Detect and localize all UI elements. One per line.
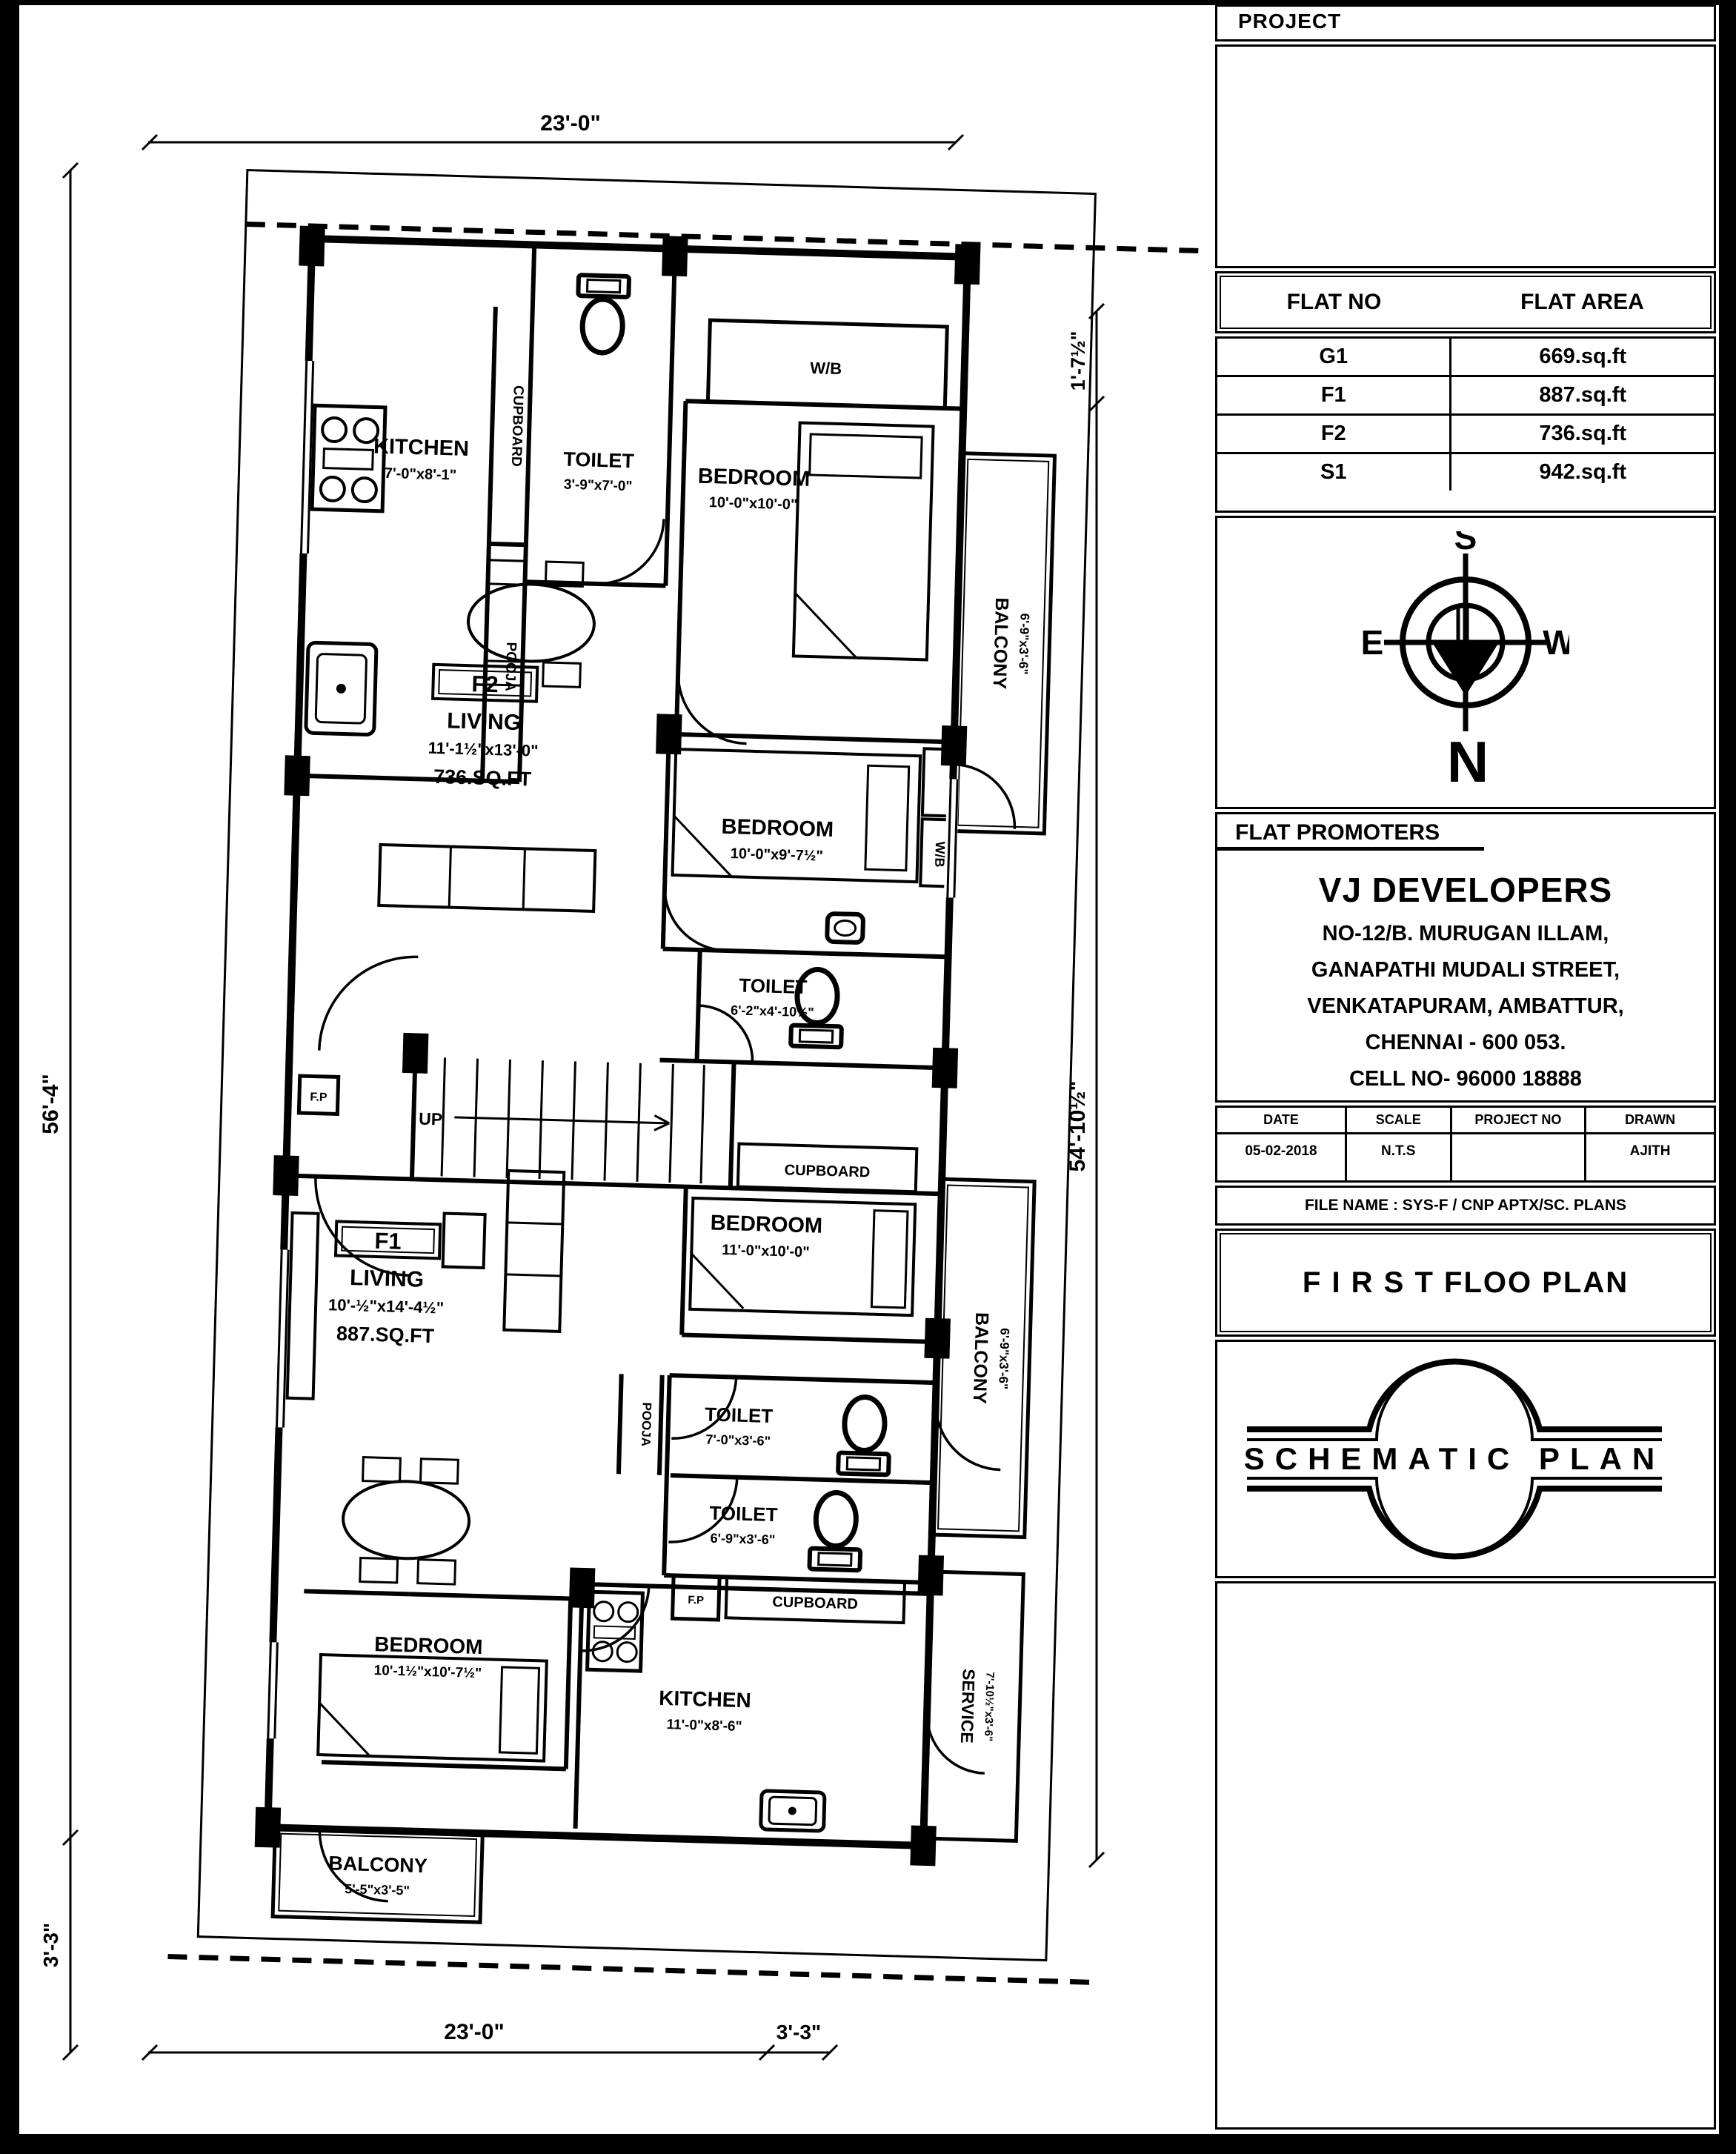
room-label: LIVING [447,708,522,735]
room-label: F.P [310,1091,327,1104]
room-dims: 3'-9"x7'-0" [564,477,633,495]
flat-area: 942.sq.ft [1451,454,1714,491]
promoter-address-line: VENKATAPURAM, AMBATTUR, [1217,994,1714,1019]
flat-area: 736.sq.ft [1451,416,1714,452]
table-row: G1 669.sq.ft [1217,339,1714,375]
room-label: POOJA [639,1402,654,1446]
room-dims: 11'-1½"x13'-0" [428,739,538,760]
room-label: LIVING [350,1266,425,1292]
sink-icon [761,1791,825,1831]
sink-icon [306,642,376,735]
promoters-box: FLAT PROMOTERS VJ DEVELOPERS NO-12/B. MU… [1215,812,1716,1103]
windows [265,361,971,1757]
file-name-strip: FILE NAME : SYS-F / CNP APTX/SC. PLANS [1215,1186,1716,1226]
room-dims: 7'-0"x3'-6" [705,1432,771,1448]
bed-icon [794,423,934,660]
room-dims: 10'-½"x14'-4½" [328,1295,445,1317]
wc-icon [576,275,629,353]
room-dims: 10'-0"x9'-7½" [730,845,823,864]
washbasin-icon [827,914,863,943]
project-label: PROJECT [1217,7,1714,33]
compass-box: S E W N [1215,516,1716,809]
compass-e: E [1362,623,1383,662]
dim-bottom-main: 23'-0" [444,2020,504,2044]
room-area: 736.SQ.FT [433,765,532,791]
project-no-value [1452,1134,1584,1152]
flat-area-header: FLAT AREA [1451,290,1714,315]
promoter-name: VJ DEVELOPERS [1217,870,1714,910]
flat-no: G1 [1217,339,1451,375]
svg-text:F2: F2 [471,671,499,697]
room-label: CUPBOARD [784,1162,870,1180]
room-label: TOILET [705,1403,774,1427]
room-label: CUPBOARD [772,1594,858,1612]
wc-icon [838,1397,891,1475]
room-dims: 10'-0"x10'-0" [708,494,797,513]
room-label: BALCONY [989,597,1012,690]
flat-no: S1 [1217,454,1451,491]
compass-s: S [1454,531,1477,556]
room-label: BEDROOM [710,1211,822,1238]
room-label: KITCHEN [659,1686,751,1712]
room-label: CUPBOARD [508,385,526,467]
room-dims: 5'-5"x3'-5" [345,1881,410,1898]
room-dims: 11'-0"x8'-6" [666,1717,742,1735]
room-dims: 10'-1½"x10'-7½" [373,1663,482,1681]
flat-table-body: G1 669.sq.ft F1 887.sq.ft F2 736.sq.ft S… [1215,336,1716,513]
project-body-box [1215,44,1716,268]
dim-bottom-right: 3'-3" [776,2021,821,2044]
dim-left-main: 56'-4" [39,1074,63,1134]
stamp-ornament: SCHEMATIC PLAN [1217,1342,1692,1576]
room-label: BEDROOM [721,815,834,842]
table-row: F2 736.sq.ft [1217,413,1714,452]
dim-right-top: 1'-7½" [1067,331,1089,391]
empty-bottom-box [1215,1581,1716,2130]
drawing-title-box: F I R S T FLOO PLAN [1215,1229,1716,1337]
stairs [442,1057,704,1183]
room-dims: 6'-9"x3'-6" [1016,613,1031,674]
table-row: F1 887.sq.ft [1217,375,1714,413]
stove-icon [588,1592,643,1671]
flat-no: F1 [1217,377,1451,413]
room-label: BEDROOM [697,465,810,491]
room-dims: 6'-9"x3'-6" [996,1328,1011,1389]
scale-label: SCALE [1347,1108,1450,1134]
drawing-sheet: 23'-0" 56'-4" 3'-3" 1'-7½" 54'-10½" 23'-… [0,0,1736,2154]
stamp-text: SCHEMATIC PLAN [1244,1441,1666,1476]
room-label: F.P [688,1594,704,1607]
promoter-address-line: CHENNAI - 600 053. [1217,1031,1714,1055]
room-label: TOILET [739,974,808,999]
floor-plan-drawing: 23'-0" 56'-4" 3'-3" 1'-7½" 54'-10½" 23'-… [0,0,1208,2154]
room-label: KITCHEN [373,434,470,461]
dim-left-bottom: 3'-3" [39,1923,62,1967]
room-label: TOILET [563,448,635,473]
flat-area: 669.sq.ft [1451,339,1714,375]
room-label: BALCONY [969,1312,992,1405]
stairs-up-label: UP [419,1109,443,1129]
promoter-address-line: GANAPATHI MUDALI STREET, [1217,958,1714,983]
compass-icon: S E W N [1362,531,1569,791]
room-dims: 11'-0"x10'-0" [722,1242,810,1260]
project-no-label: PROJECT NO [1452,1108,1584,1134]
room-label: SERVICE [957,1669,979,1744]
dim-top: 23'-0" [540,111,600,136]
table-row: S1 942.sq.ft [1217,452,1714,491]
armchair-icon [443,1214,485,1269]
flat-area: 887.sq.ft [1451,377,1714,413]
drawing-title: F I R S T FLOO PLAN [1217,1231,1714,1300]
drawn-value: AJITH [1586,1134,1714,1169]
flat-no: F2 [1217,416,1451,452]
promoters-header: FLAT PROMOTERS [1217,814,1484,851]
room-dims: 7'-10½"x3'-6" [982,1672,997,1741]
flat-no-header: FLAT NO [1217,290,1451,315]
date-label: DATE [1217,1108,1345,1134]
promoter-address-line: NO-12/B. MURUGAN ILLAM, [1217,922,1714,946]
stove-icon [312,405,385,511]
meta-table: DATE 05-02-2018 SCALE N.T.S PROJECT NO D… [1215,1106,1716,1183]
sheet-border-right [1719,0,1736,2154]
room-label: BEDROOM [374,1632,483,1658]
wc-icon [809,1492,862,1571]
project-header-box: PROJECT [1215,4,1716,41]
sofa-icon [379,845,595,911]
dining-table-icon [342,1457,471,1585]
svg-text:F1: F1 [374,1228,402,1254]
stamp-box: SCHEMATIC PLAN [1215,1340,1716,1578]
file-name: FILE NAME : SYS-F / CNP APTX/SC. PLANS [1217,1188,1714,1214]
compass-n: N [1447,729,1489,791]
promoter-phone: CELL NO- 96000 18888 [1217,1067,1714,1091]
room-dims: 6'-9"x3'-6" [710,1531,775,1547]
room-label: TOILET [709,1502,778,1526]
room-dims: 6'-2"x4'-10½" [731,1003,814,1020]
scale-value: N.T.S [1347,1134,1450,1169]
room-label: BALCONY [328,1852,428,1878]
tv-unit-icon [287,1213,319,1399]
flat-table-header: FLAT NO FLAT AREA [1215,271,1716,333]
title-block: PROJECT FLAT NO FLAT AREA G1 669.sq.ft F… [1215,4,1716,2130]
sofa-icon [504,1171,564,1332]
date-value: 05-02-2018 [1217,1134,1345,1169]
room-area: 887.SQ.FT [336,1323,435,1348]
room-label: W/B [810,359,842,378]
compass-w: W [1543,623,1569,662]
room-label: W/B [932,841,948,868]
drawn-label: DRAWN [1586,1108,1714,1134]
room-dims: 7'-0"x8'-1" [384,465,456,484]
